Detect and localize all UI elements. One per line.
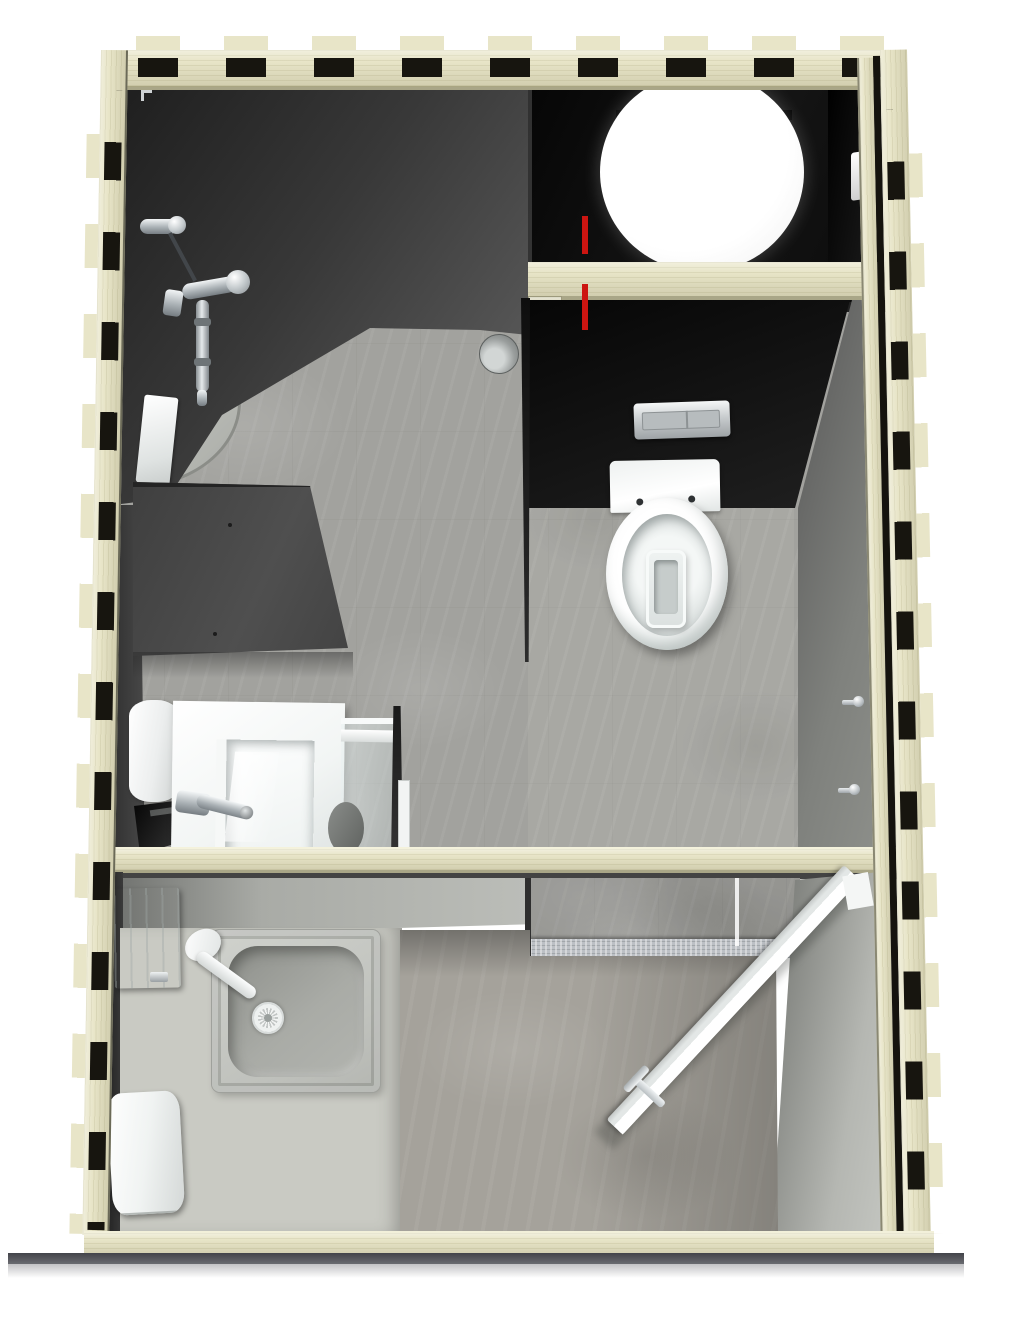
shower-mixer-ball: [226, 270, 250, 294]
top-frame-notches: [103, 58, 907, 77]
door-jamb-highlight: [735, 878, 739, 946]
shower-rail-clamp: [194, 318, 211, 326]
red-supply-pipe: [582, 216, 588, 254]
square-washbasin: [171, 701, 345, 859]
corner-bracket-icon: [141, 90, 152, 101]
coat-hook-knob: [853, 696, 864, 707]
paper-towel-dispenser: [113, 887, 181, 988]
door-hinge-panel: [842, 872, 874, 910]
seat-bolt: [688, 495, 695, 502]
tray-drain-center: [264, 1014, 272, 1022]
glass-partition-rail: [341, 730, 397, 743]
top-frame-tabs: [103, 36, 907, 51]
partition-screw: [228, 523, 232, 527]
chrome-flush-plate: [633, 400, 730, 439]
toilet-flush-slot: [654, 560, 678, 614]
red-supply-pipe: [582, 284, 588, 330]
shower-rail-clamp: [194, 358, 211, 366]
partition-floor-shadow: [133, 652, 353, 678]
floor-drain: [479, 334, 519, 374]
shower-rail-end: [197, 390, 207, 406]
basin-drain: [240, 806, 253, 819]
water-boiler-cylinder: [600, 88, 804, 272]
render-stage: [0, 0, 1010, 1326]
flush-plate-buttons: [642, 410, 721, 431]
soap-dispenser-lower: [107, 1090, 185, 1216]
shower-mixer-mount: [162, 289, 183, 317]
partition-screw: [213, 632, 217, 636]
entry-floor: [400, 928, 778, 1232]
mid-wall-beam: [98, 847, 906, 873]
toilet-flush-channel: [646, 550, 686, 628]
ground-shadow-fade: [8, 1264, 964, 1278]
tray-bowl: [228, 946, 364, 1077]
dispenser-chrome-clip: [150, 972, 168, 982]
coat-hook-knob: [849, 784, 860, 795]
doorway-floor-view: [530, 878, 800, 958]
ground-shadow: [8, 1253, 964, 1264]
shower-rail: [196, 300, 209, 392]
